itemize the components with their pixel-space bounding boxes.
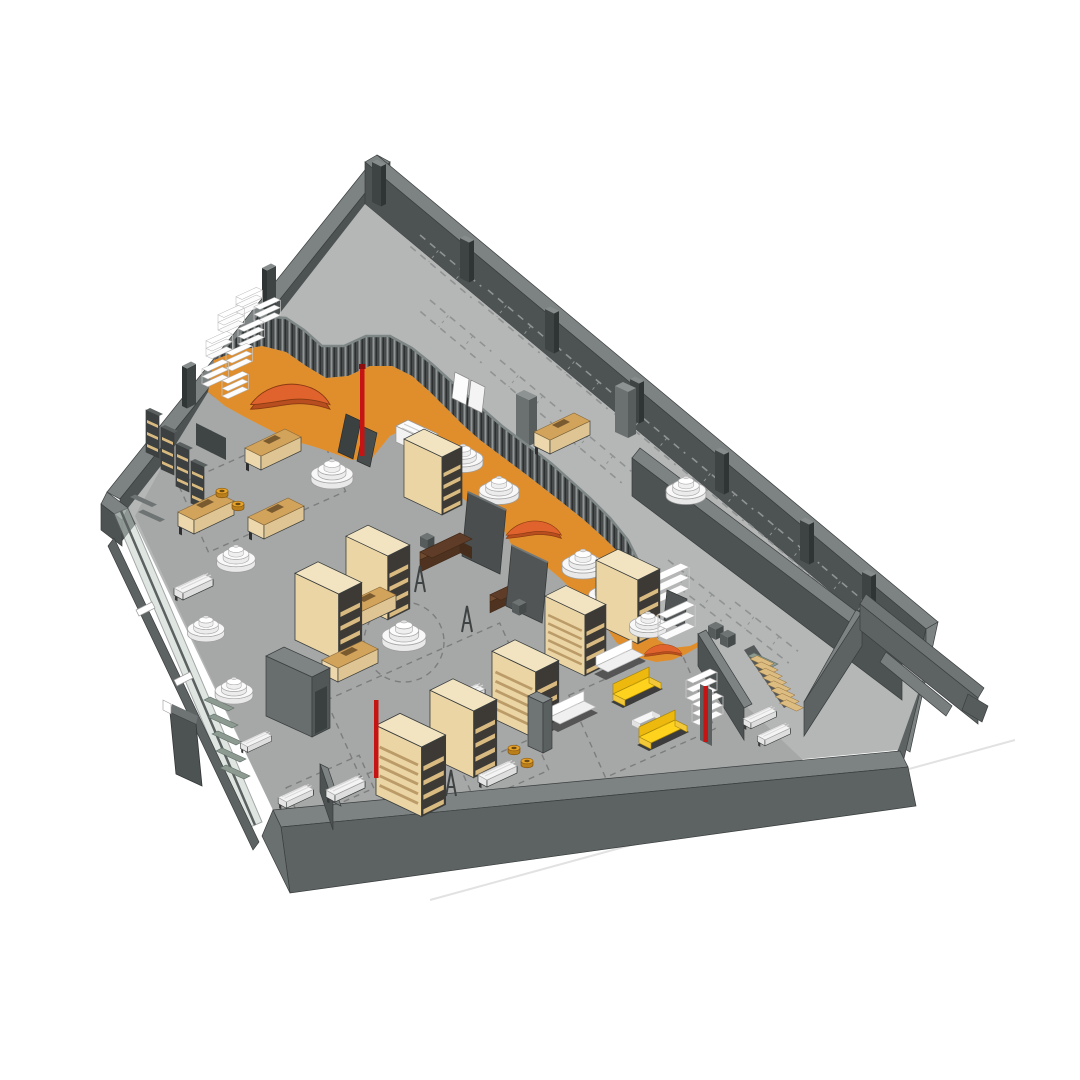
isometric-store-svg [0,0,1080,1080]
column [615,382,636,438]
orange-stool [508,745,520,755]
orange-stool [521,758,533,768]
kiosk-pillar [528,692,552,754]
orange-stool [216,488,228,498]
floorplan-render [0,0,1080,1080]
orange-stool [232,501,244,511]
red-strip [374,700,379,778]
side-cube-table [512,599,526,616]
red-strip-panel [700,684,712,746]
